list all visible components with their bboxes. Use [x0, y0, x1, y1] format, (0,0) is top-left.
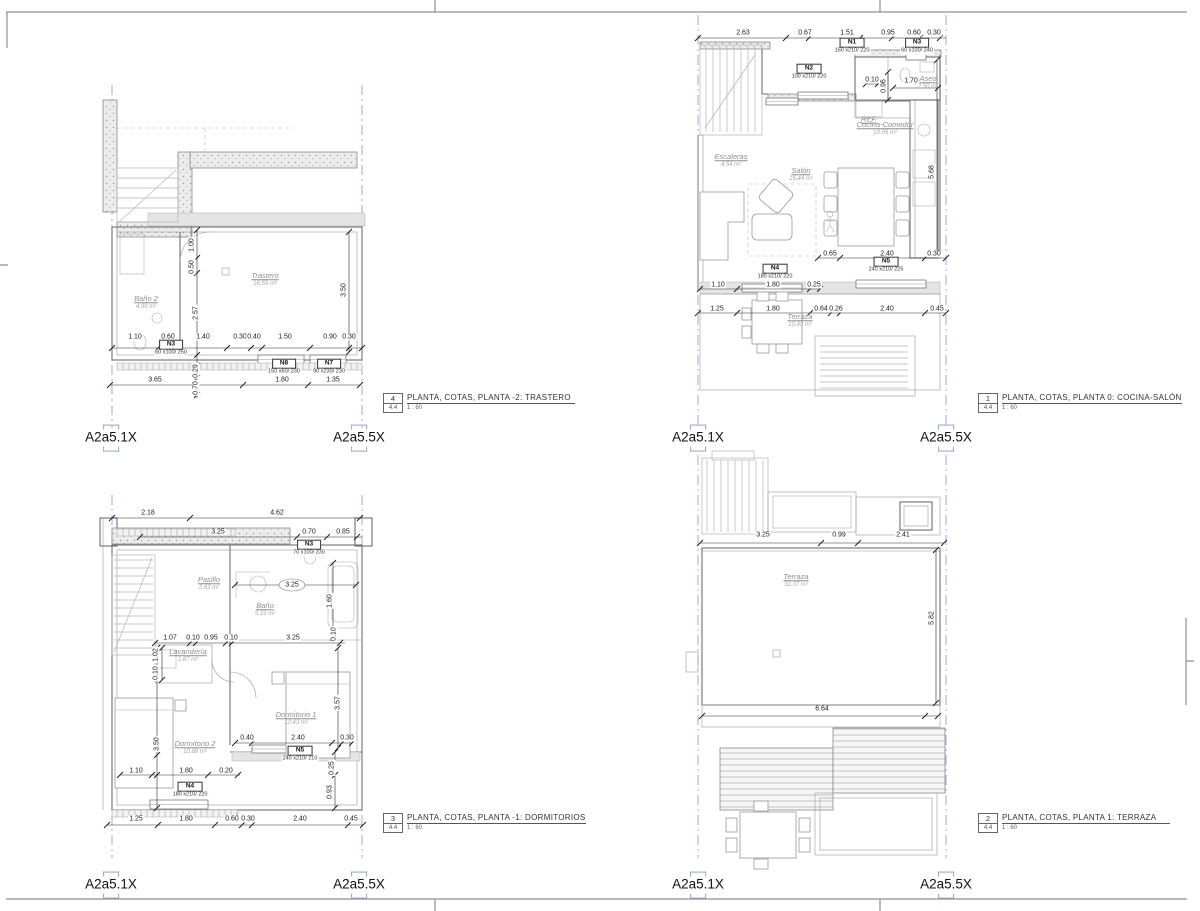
view-number: 2 — [979, 814, 997, 824]
stairs — [112, 555, 155, 655]
caption-cocina-salon: 1 4.4 PLANTA, COTAS, PLANTA 0: COCINA-SA… — [978, 393, 1182, 413]
caption-number-box: 3 4.4 — [383, 813, 403, 833]
beds — [115, 672, 350, 788]
stairs — [700, 45, 762, 135]
plan-trastero-linework — [30, 75, 430, 435]
caption-number-box: 1 4.4 — [978, 393, 998, 413]
view-scale: 1 : 60 — [1002, 825, 1170, 831]
dimension-lines — [697, 540, 947, 719]
view-scale: 1 : 60 — [407, 825, 586, 831]
caption-dormitorios: 3 4.4 PLANTA, COTAS, PLANTA -1: DORMITOR… — [383, 813, 586, 833]
view-number: 4 — [384, 394, 402, 404]
caption-trastero: 4 4.4 PLANTA, COTAS, PLANTA -2: TRASTERO… — [383, 393, 575, 413]
plan-terraza-linework — [685, 450, 1015, 855]
bathroom-fixtures — [120, 234, 162, 350]
view-scale: 1 : 60 — [1002, 405, 1182, 411]
aseo-fixtures — [900, 62, 934, 82]
living-room — [700, 178, 834, 260]
dimension-lines — [107, 227, 365, 398]
view-title: PLANTA, COTAS, PLANTA 0: COCINA-SALÓN — [1002, 393, 1182, 404]
caption-terraza: 2 4.4 PLANTA, COTAS, PLANTA 1: TERRAZA 1… — [978, 813, 1170, 833]
dining-set — [824, 168, 909, 246]
roof-stairs — [702, 451, 768, 534]
sheet-number: 4.4 — [979, 824, 997, 832]
view-number: 1 — [979, 394, 997, 404]
view-number: 3 — [384, 814, 402, 824]
plan-cocina-salon-linework — [685, 10, 1015, 405]
view-title: PLANTA, COTAS, PLANTA 1: TERRAZA — [1002, 813, 1170, 824]
caption-number-box: 2 4.4 — [978, 813, 998, 833]
sheet-number: 4.4 — [384, 824, 402, 832]
view-title: PLANTA, COTAS, PLANTA -1: DORMITORIOS — [407, 813, 586, 824]
view-title: PLANTA, COTAS, PLANTA -2: TRASTERO — [407, 393, 575, 404]
drawing-sheet: 1.100.601.400.300.401.500.900.303.651.80… — [0, 0, 1200, 911]
sheet-number: 4.4 — [384, 404, 402, 412]
sheet-number: 4.4 — [979, 404, 997, 412]
terrace-below — [700, 292, 940, 396]
view-scale: 1 : 60 — [407, 405, 575, 411]
dimension-lines — [695, 35, 949, 316]
plan-dormitorios-linework — [30, 490, 430, 865]
caption-number-box: 4 4.4 — [383, 393, 403, 413]
